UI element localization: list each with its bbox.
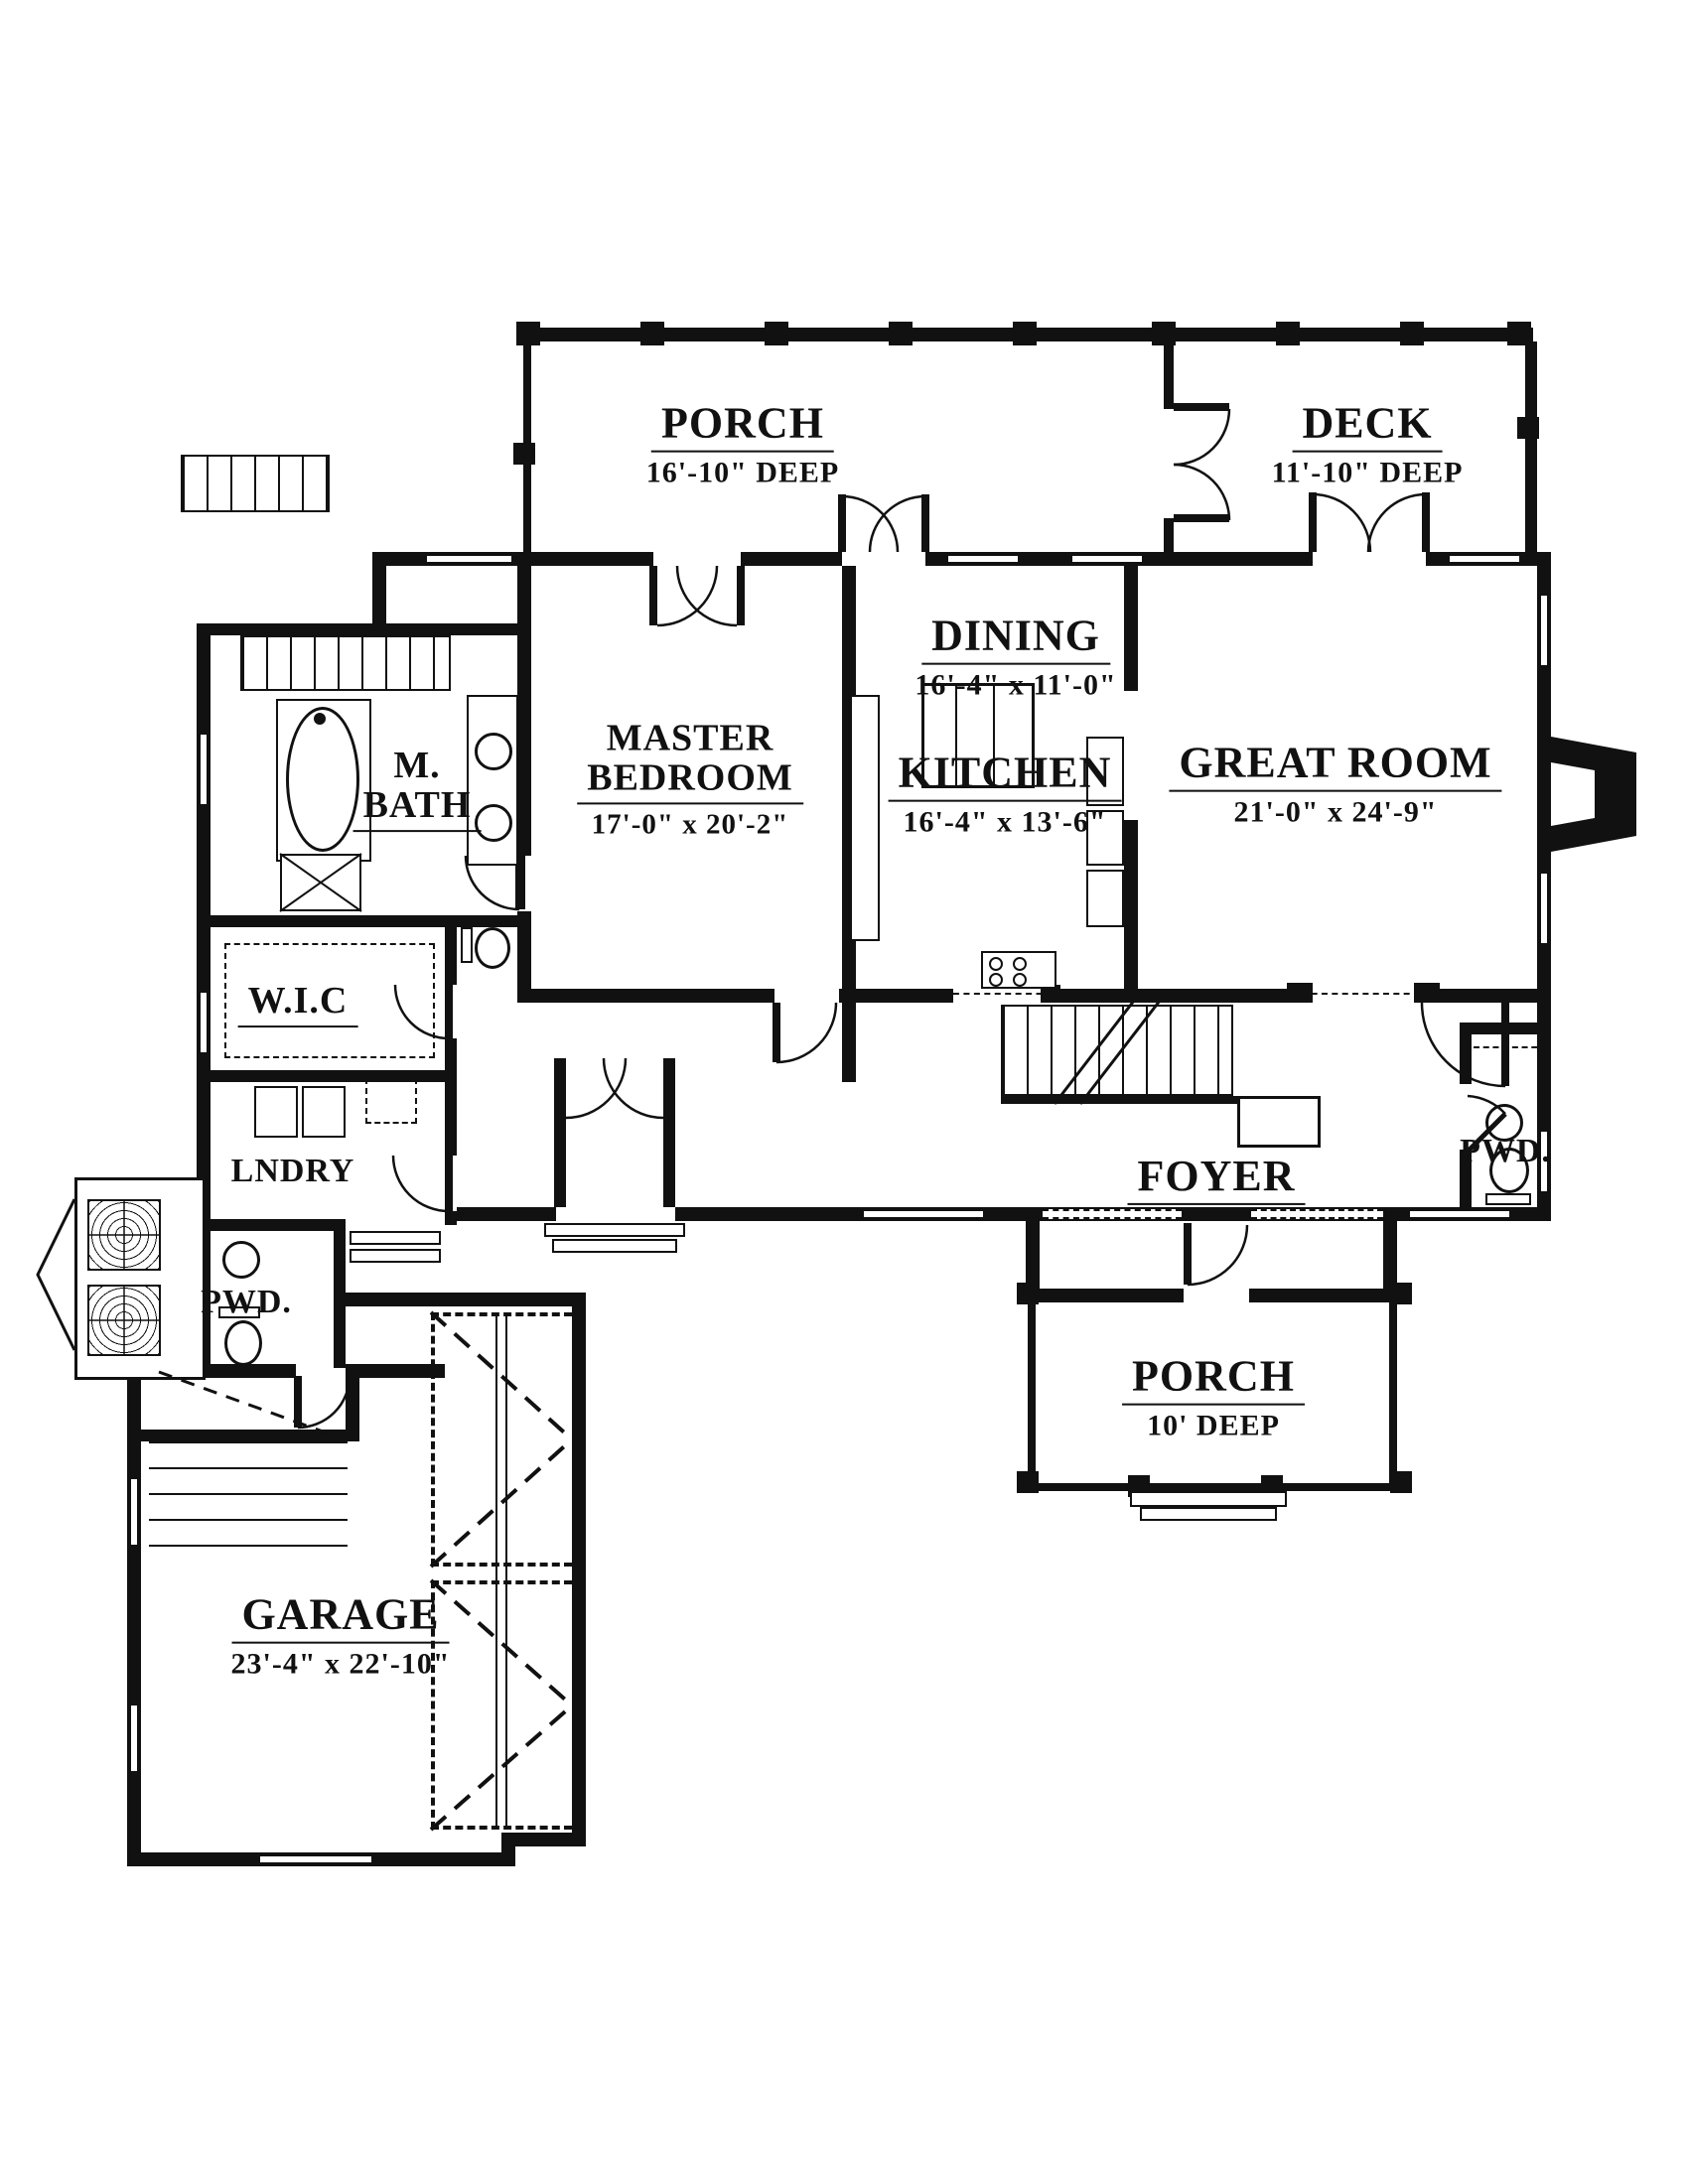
wall-segment: GARAGE — [231, 1592, 449, 1644]
wall-segment: KITCHEN — [889, 751, 1122, 802]
stair-direction-line — [1055, 1001, 1134, 1104]
door-arc — [1313, 494, 1370, 552]
wall-segment: DINING — [921, 614, 1110, 665]
wall-segment: 21'-0" x 24'-9" — [1169, 797, 1501, 829]
wall-segment: W.I.C — [238, 982, 358, 1027]
room-label-porch-top: PORCH 16'-10" DEEP — [646, 401, 840, 489]
garage-door-swing — [431, 1312, 572, 1567]
room-label-great-room: GREAT ROOM 21'-0" x 24'-9" — [1169, 741, 1501, 829]
wall-segment: MASTER — [587, 719, 793, 758]
door-arc — [604, 1058, 663, 1118]
room-label-master-bedroom: MASTERBEDROOM 17'-0" x 20'-2" — [577, 719, 803, 839]
door-arc — [776, 1003, 836, 1062]
room-label-kitchen: KITCHEN 16'-4" x 13'-6" — [889, 751, 1122, 839]
wall-segment: GREAT ROOM — [1169, 741, 1501, 792]
door-arc — [566, 1058, 626, 1118]
wall-segment: M.BATH — [353, 747, 482, 832]
wall-segment: FOYER — [1128, 1154, 1306, 1205]
door-arc — [298, 1376, 350, 1428]
room-label-deck: DECK 11'-10" DEEP — [1272, 401, 1464, 489]
wall-segment: PWD. — [1450, 1134, 1561, 1169]
wall-segment: PWD. — [191, 1285, 302, 1320]
door-arc — [466, 856, 519, 909]
door-arc — [1174, 465, 1229, 520]
wall-segment: PORCH — [1122, 1354, 1305, 1406]
room-label-m-bath: M.BATH — [353, 747, 482, 832]
wall-segment: 16'-4" x 13'-6" — [889, 807, 1122, 839]
door-arc — [1174, 409, 1229, 465]
hvac-cross — [87, 1199, 161, 1271]
door-arc — [677, 566, 737, 625]
fireplace-firebox — [1551, 762, 1595, 826]
wall-segment: 10' DEEP — [1122, 1411, 1305, 1442]
door-arc — [1422, 1003, 1505, 1086]
wall-segment: MASTERBEDROOM — [577, 719, 803, 804]
platform-brace — [38, 1199, 74, 1350]
hvac-cross — [87, 1285, 161, 1356]
wall-segment: 16'-10" DEEP — [646, 458, 840, 489]
room-label-wic: W.I.C — [238, 982, 358, 1027]
wall-segment: BATH — [363, 786, 472, 826]
door-arc — [657, 566, 717, 625]
door-arc — [393, 1156, 449, 1211]
wall-segment: 16'-4" x 11'-0" — [914, 670, 1116, 702]
door-arc — [1468, 1096, 1505, 1114]
door-arc — [395, 985, 449, 1038]
wall-segment: 17'-0" x 20'-2" — [577, 809, 803, 839]
room-label-porch-front: PORCH 10' DEEP — [1122, 1354, 1305, 1442]
wall-segment: PORCH — [651, 401, 834, 453]
wall-segment: DECK — [1292, 401, 1442, 453]
wall-segment: 11'-10" DEEP — [1272, 458, 1464, 489]
room-label-laundry: LNDRY — [221, 1154, 365, 1189]
floor-plan-canvas: PORCH 16'-10" DEEP DECK 11'-10" DEEP DIN… — [0, 0, 1688, 2184]
wall-segment: M. — [363, 747, 472, 786]
stair-direction-line — [1080, 1001, 1160, 1104]
wall-segment: LNDRY — [221, 1154, 365, 1189]
wall-segment: 23'-4" x 22'-10" — [231, 1649, 451, 1681]
shower-x — [280, 854, 361, 911]
wall-segment: BEDROOM — [587, 758, 793, 798]
door-arc — [1368, 494, 1426, 552]
room-label-powder-right: PWD. — [1450, 1134, 1561, 1169]
room-label-garage: GARAGE 23'-4" x 22'-10" — [231, 1592, 451, 1681]
room-label-foyer: FOYER — [1128, 1154, 1306, 1205]
plan-linework-overlay — [0, 0, 1688, 2184]
garage-door-swing — [431, 1580, 572, 1830]
room-label-dining: DINING 16'-4" x 11'-0" — [914, 614, 1116, 702]
room-label-powder-left: PWD. — [191, 1285, 302, 1320]
door-arc — [1188, 1225, 1247, 1285]
